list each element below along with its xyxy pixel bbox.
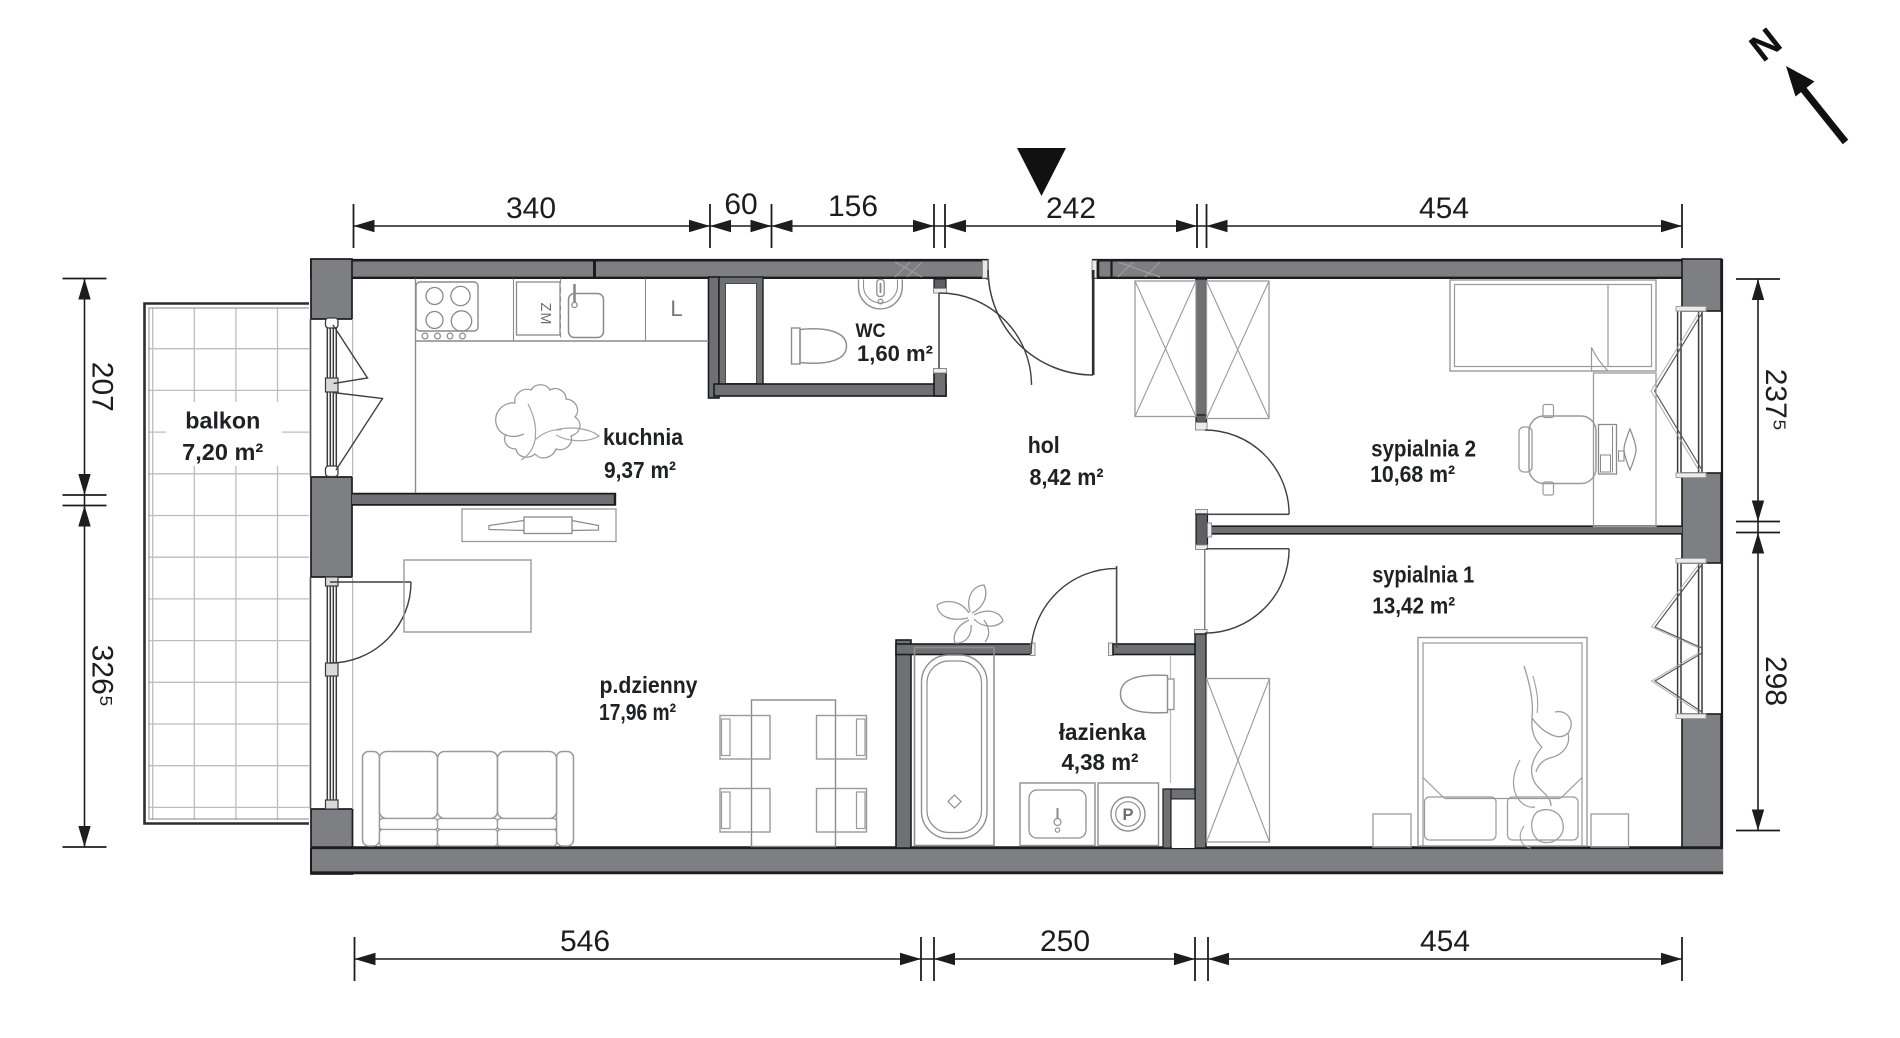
svg-text:298: 298	[1759, 656, 1792, 706]
svg-text:sypialnia 1: sypialnia 1	[1372, 562, 1474, 588]
svg-text:ZM: ZM	[537, 303, 553, 326]
svg-text:1,60 m²: 1,60 m²	[857, 341, 933, 366]
svg-text:7,20 m²: 7,20 m²	[182, 439, 263, 465]
svg-text:łazienka: łazienka	[1059, 719, 1146, 745]
svg-text:340: 340	[506, 192, 556, 225]
svg-text:13,42 m²: 13,42 m²	[1372, 593, 1455, 619]
svg-text:242: 242	[1046, 192, 1096, 225]
svg-text:454: 454	[1420, 925, 1470, 958]
svg-text:sypialnia 2: sypialnia 2	[1371, 436, 1476, 462]
svg-text:L: L	[670, 296, 682, 321]
svg-text:326⁵: 326⁵	[86, 645, 119, 708]
svg-text:hol: hol	[1028, 432, 1060, 458]
svg-text:237⁵: 237⁵	[1759, 369, 1792, 432]
svg-text:250: 250	[1040, 925, 1090, 958]
svg-text:9,37 m²: 9,37 m²	[604, 457, 676, 483]
svg-text:WC: WC	[856, 321, 886, 342]
svg-text:546: 546	[560, 925, 610, 958]
svg-text:8,42 m²: 8,42 m²	[1030, 464, 1104, 490]
svg-text:207: 207	[86, 362, 119, 412]
svg-text:60: 60	[724, 188, 757, 221]
svg-text:10,68 m²: 10,68 m²	[1370, 461, 1455, 487]
svg-text:P: P	[1122, 806, 1133, 824]
svg-text:p.dzienny: p.dzienny	[600, 672, 698, 698]
svg-text:4,38 m²: 4,38 m²	[1062, 749, 1139, 775]
svg-text:balkon: balkon	[185, 408, 260, 434]
svg-text:156: 156	[828, 190, 878, 223]
svg-text:454: 454	[1419, 192, 1469, 225]
svg-text:kuchnia: kuchnia	[603, 424, 683, 450]
svg-text:17,96 m²: 17,96 m²	[599, 699, 676, 725]
